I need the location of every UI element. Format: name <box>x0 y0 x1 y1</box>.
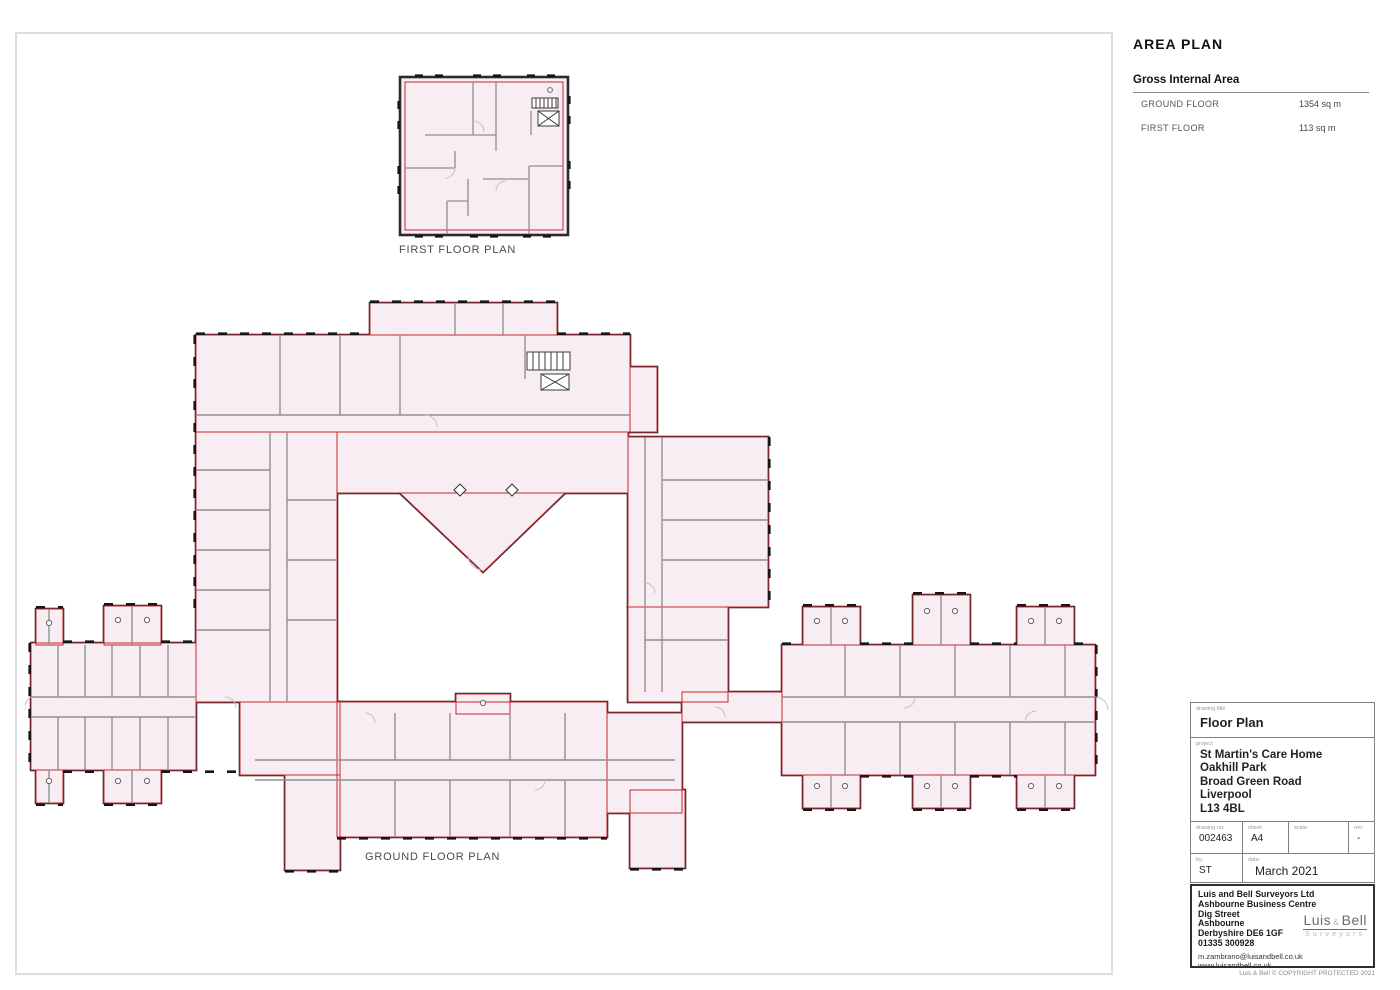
surveyor-company-box: Luis and Bell Surveyors Ltd Ashbourne Bu… <box>1190 884 1375 968</box>
drawing-title-value: Floor Plan <box>1191 712 1374 730</box>
company-line: 01335 300928 <box>1198 939 1373 949</box>
project-label: project <box>1191 738 1374 747</box>
title-block: drawing title Floor Plan project St Mart… <box>1190 702 1375 883</box>
area-plan-title: AREA PLAN <box>1133 36 1223 52</box>
first-floor-plan-label: FIRST FLOOR PLAN <box>399 244 516 256</box>
date-value: March 2021 <box>1243 863 1374 878</box>
gia-row-value: 1354 sq m <box>1299 99 1341 109</box>
scale-label: scale: <box>1289 822 1348 831</box>
drawing-no-value: 002463 <box>1191 831 1242 844</box>
logo-ampersand: & <box>1331 917 1342 927</box>
drawing-sheet: FIRST FLOOR PLAN <box>0 0 1400 990</box>
drawing-no-cell: drawing no: 002463 <box>1191 822 1243 853</box>
scale-cell: scale: <box>1289 822 1349 853</box>
project-line: Liverpool <box>1200 789 1374 802</box>
sheet-label: sheet: <box>1243 822 1288 831</box>
date-cell: date: March 2021 <box>1243 854 1374 882</box>
rev-value: - <box>1349 831 1374 844</box>
sheet-value: A4 <box>1243 831 1288 844</box>
company-email: m.zambrano@luisandbell.co.uk <box>1198 952 1373 961</box>
toilet-symbol <box>548 88 553 93</box>
gross-internal-area-heading: Gross Internal Area <box>1133 74 1369 93</box>
first-floor-plan-drawing <box>395 71 573 243</box>
drawing-no-label: drawing no: <box>1191 822 1242 831</box>
project-line: L13 4BL <box>1200 803 1374 816</box>
rev-cell: rev: - <box>1349 822 1374 853</box>
project-line: Oakhill Park <box>1200 762 1374 775</box>
logo-word: Luis <box>1303 912 1331 928</box>
gia-row-value: 113 sq m <box>1299 123 1335 133</box>
drawing-title-label: drawing title <box>1191 703 1374 712</box>
sheet-cell: sheet: A4 <box>1243 822 1289 853</box>
copyright-note: Luis & Bell © COPYRIGHT PROTECTED 2021 <box>1190 970 1375 977</box>
luisandbell-logo: Luis&Bell Surveyors <box>1303 912 1367 938</box>
by-value: ST <box>1191 863 1242 876</box>
rev-label: rev: <box>1349 822 1374 831</box>
logo-subtitle: Surveyors <box>1303 931 1367 938</box>
gia-row-label: FIRST FLOOR <box>1141 123 1205 133</box>
date-label: date: <box>1243 854 1374 863</box>
by-label: by: <box>1191 854 1242 863</box>
drawing-title-cell: drawing title Floor Plan <box>1191 703 1374 738</box>
company-website: www.luisandbell.co.uk <box>1198 961 1373 968</box>
ground-floor-plan-label: GROUND FLOOR PLAN <box>365 851 500 863</box>
ground-floor-plan-drawing <box>25 283 1120 878</box>
logo-word: Bell <box>1342 912 1367 928</box>
scale-value <box>1289 831 1348 833</box>
project-line: St Martin's Care Home <box>1200 749 1374 762</box>
project-line: Broad Green Road <box>1200 776 1374 789</box>
project-cell: project St Martin's Care Home Oakhill Pa… <box>1191 738 1374 822</box>
gia-row-label: GROUND FLOOR <box>1141 99 1219 109</box>
by-cell: by: ST <box>1191 854 1243 882</box>
